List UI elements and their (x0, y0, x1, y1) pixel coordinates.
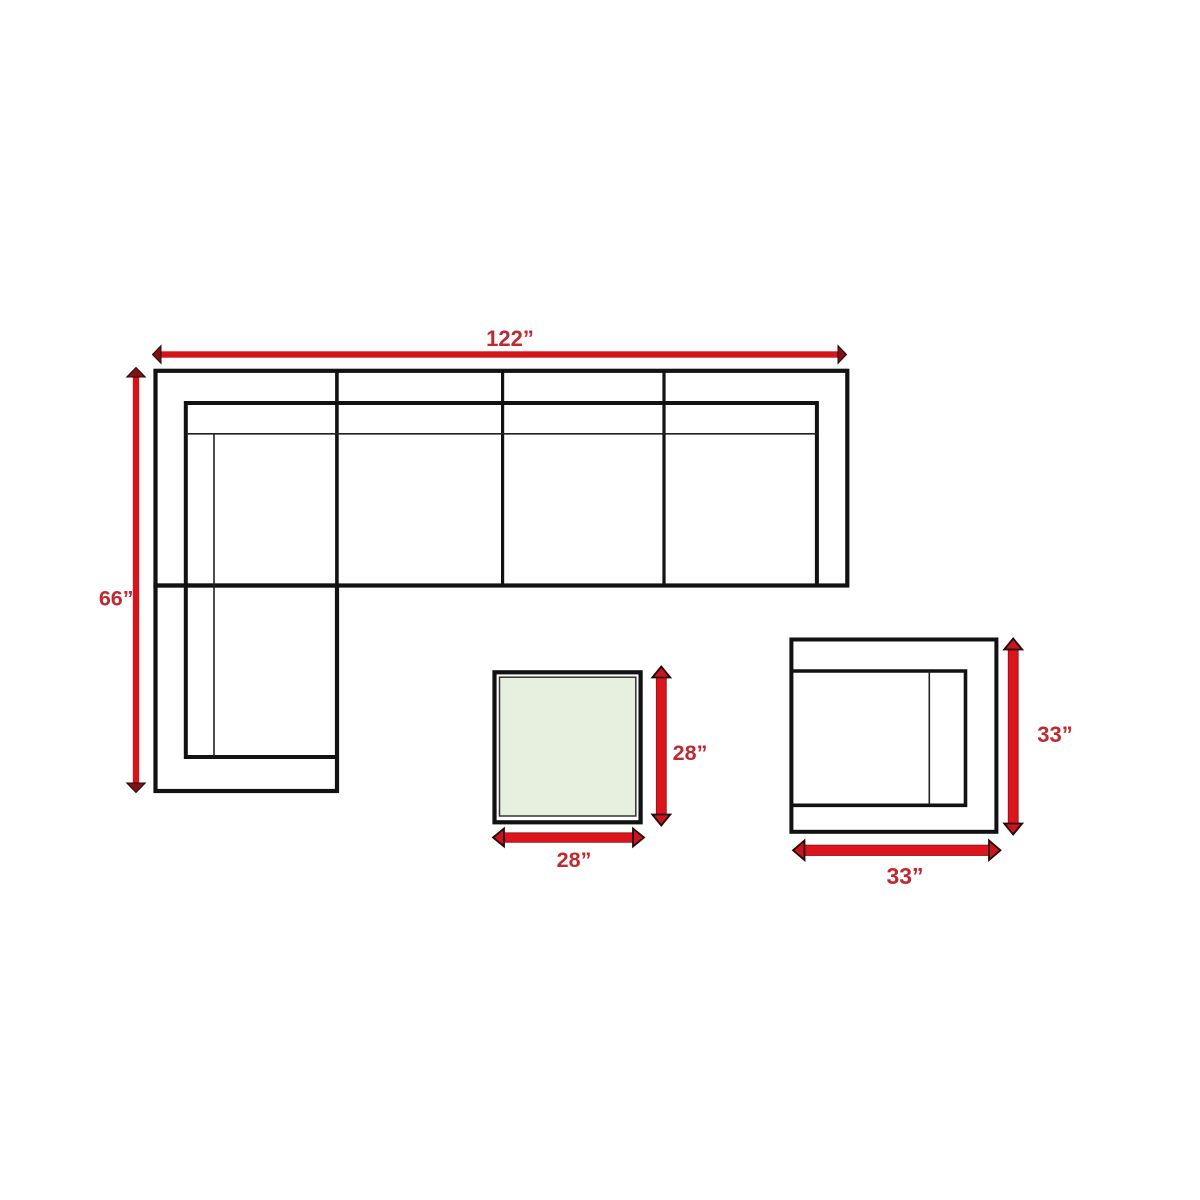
svg-text:28”: 28” (673, 741, 708, 765)
svg-text:28”: 28” (557, 848, 592, 872)
svg-text:33”: 33” (1037, 722, 1072, 747)
svg-text:33”: 33” (886, 863, 923, 889)
svg-text:66”: 66” (99, 587, 134, 611)
svg-text:122”: 122” (486, 326, 534, 351)
